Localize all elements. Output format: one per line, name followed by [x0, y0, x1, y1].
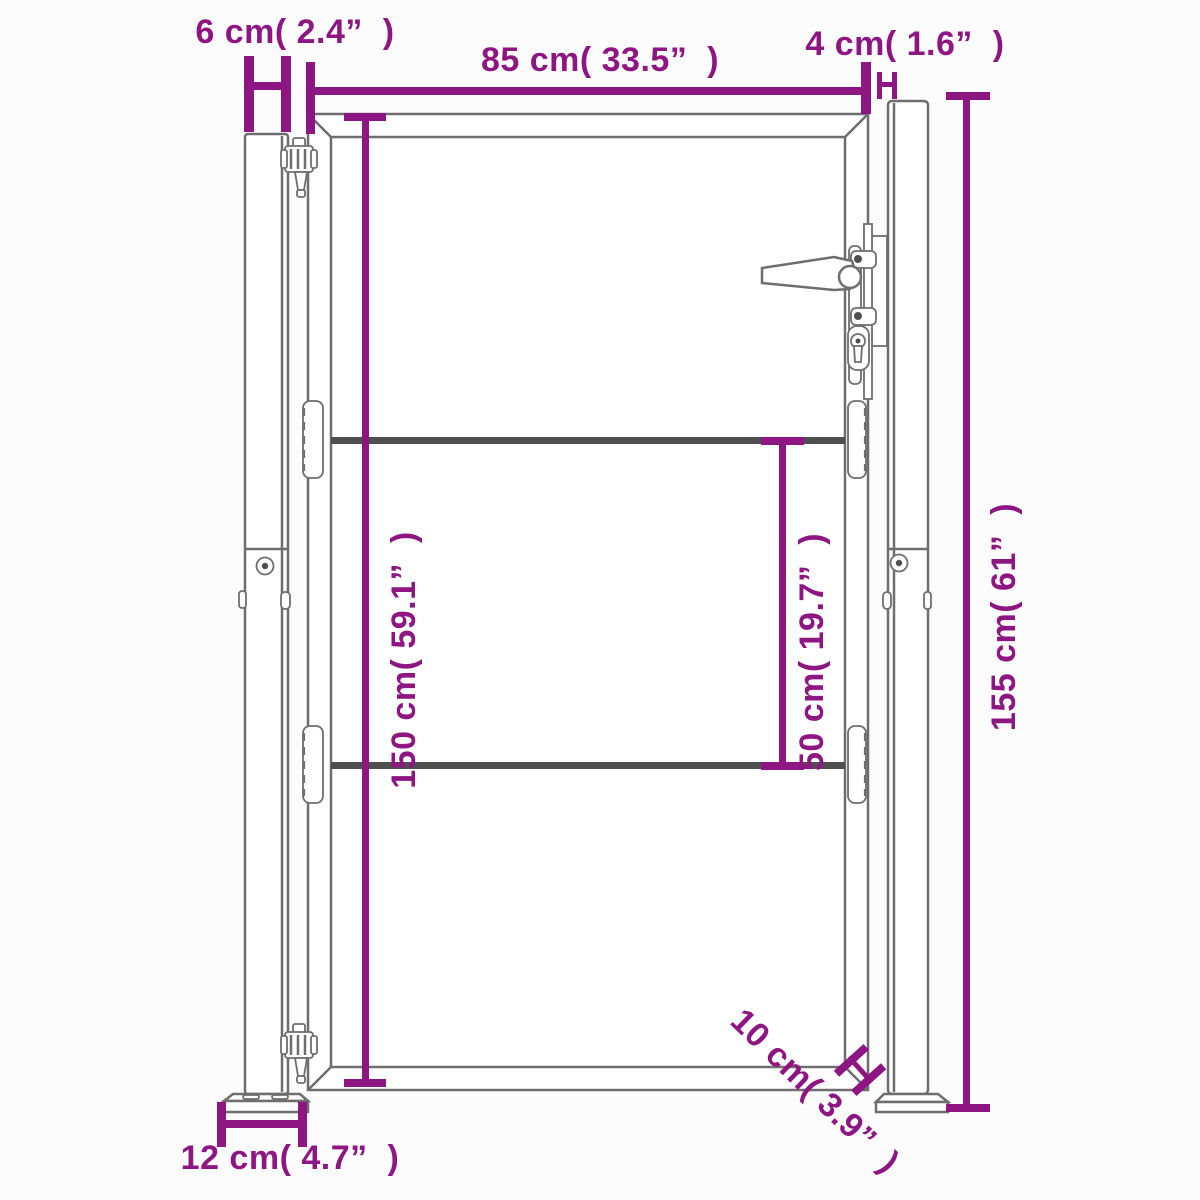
left-post-base-plate [224, 1094, 308, 1112]
dim-gate-height-label: 150 cm( 59.1” ) [384, 470, 424, 850]
dim-gate-width-label: 85 cm( 33.5” ) [430, 40, 770, 80]
keyhole [848, 326, 869, 370]
dim-post-height-label: 155 cm( 61” ) [984, 447, 1024, 787]
right-post-base-plate [876, 1094, 948, 1112]
left-post-tab [281, 592, 290, 609]
gate-dimension-diagram: 6 cm( 2.4” ) 85 cm( 33.5” ) 4 cm( 1.6” )… [0, 0, 1200, 1200]
left-post [224, 134, 308, 1112]
dim-rail-spacing-label: 50 cm( 19.7” ) [792, 472, 832, 832]
dim-gap-marker [877, 72, 897, 99]
dim-gap-label: 4 cm( 1.6” ) [800, 24, 1010, 64]
dim-post-width-label: 6 cm( 2.4” ) [160, 12, 430, 52]
right-post-tab [883, 592, 891, 609]
dim-base-plate-label: 12 cm( 4.7” ) [140, 1138, 440, 1178]
right-post-tab [924, 592, 931, 609]
left-post-tab [239, 591, 246, 608]
dim-post-width-marker [244, 56, 291, 132]
